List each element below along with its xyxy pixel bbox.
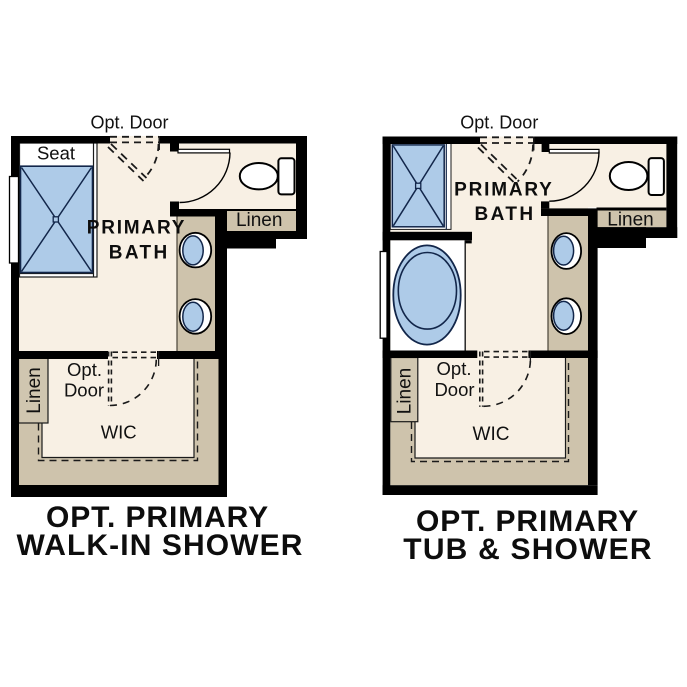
svg-text:BATH: BATH [475, 204, 536, 225]
svg-text:PRIMARY: PRIMARY [87, 217, 187, 238]
svg-text:Door: Door [64, 380, 104, 401]
svg-text:Opt.: Opt. [437, 358, 472, 379]
svg-text:Seat: Seat [37, 143, 75, 164]
svg-text:Linen: Linen [24, 367, 45, 414]
svg-text:WALK-IN SHOWER: WALK-IN SHOWER [16, 529, 303, 562]
svg-text:Opt. Door: Opt. Door [90, 113, 168, 133]
svg-text:Linen: Linen [395, 368, 416, 415]
svg-text:Linen: Linen [236, 210, 283, 231]
svg-text:TUB & SHOWER: TUB & SHOWER [403, 533, 652, 566]
svg-text:WIC: WIC [101, 422, 137, 443]
svg-text:Opt.: Opt. [67, 359, 102, 380]
svg-text:Opt. Door: Opt. Door [460, 113, 538, 133]
svg-text:BATH: BATH [109, 243, 170, 264]
svg-text:WIC: WIC [473, 424, 510, 445]
svg-text:Door: Door [434, 379, 474, 400]
svg-text:PRIMARY: PRIMARY [454, 180, 554, 201]
